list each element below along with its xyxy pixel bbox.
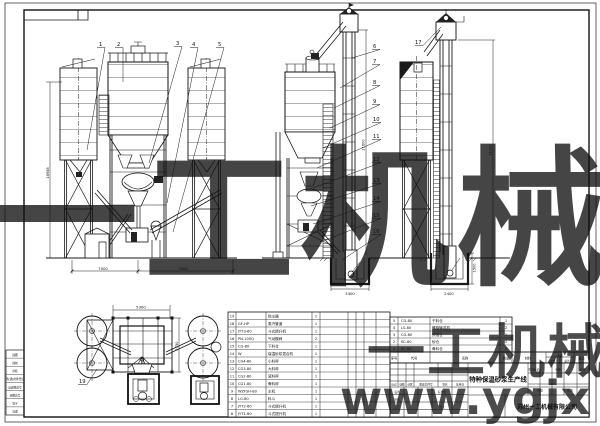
bom-cell-code: CG2-80	[238, 375, 252, 379]
bom-cell-code: LG-80	[238, 397, 249, 401]
bom-cell-no: 18	[230, 322, 235, 326]
callout-3: 3	[176, 41, 179, 47]
bom-cell-code: JYT3-60	[237, 330, 252, 334]
callout-6: 6	[373, 44, 376, 50]
bom-cell-name: 主机	[268, 389, 276, 394]
watermark-url: www.ygjx	[340, 371, 590, 425]
bom-cell-no: 11	[230, 375, 235, 379]
margin-block-label: 签字	[12, 402, 18, 406]
bom-cell-name: 大料秤	[268, 366, 279, 371]
callout-17: 17	[415, 40, 422, 46]
bom-cell-code: JYT1-60	[237, 412, 252, 416]
bom-cell-name: 液料秤	[268, 374, 279, 379]
bom-cell-qty: 1	[315, 330, 317, 334]
bom-cell-qty: 1	[315, 390, 317, 394]
bom-cell-no: 14	[230, 352, 235, 356]
margin-block-label: 日期	[12, 410, 18, 414]
callout-10: 10	[373, 117, 380, 123]
bom-cell-qty: 1	[315, 315, 317, 319]
bom-cell-code: PN-100Q	[238, 337, 254, 341]
bom-cell-code: JYT2-60	[237, 405, 252, 409]
bom-cell-code: CG1-80	[238, 382, 252, 386]
callout-2: 2	[117, 42, 120, 48]
bom-cell-name: 蒸汽管道	[268, 321, 283, 326]
margin-block-label: 审核	[12, 369, 18, 373]
bom-cell-no: 13	[230, 360, 235, 364]
bom-cell-name: 小料秤	[268, 359, 279, 364]
bom-cell-code: CG3-80	[238, 367, 252, 371]
bom-cell-qty: 1	[315, 412, 317, 416]
bom-cell-no: 12	[230, 367, 235, 371]
bom-cell-name: 气动蝶阀	[268, 336, 283, 341]
bom-cell-no: 10	[230, 382, 235, 386]
margin-block-label: 描校	[12, 361, 18, 365]
bom-cell-code: CG-80	[238, 345, 250, 349]
bom-cell-name: 斗式提升机	[268, 404, 286, 409]
callout-8: 8	[373, 80, 376, 86]
bom-cell-no: 17	[230, 330, 235, 334]
bom-cell-qty: 1	[315, 345, 317, 349]
callout-1: 1	[99, 42, 102, 48]
engineering-drawing-sheet: 描图描校审核借(通)用件登记旧底图总号底图总号签字日期	[0, 0, 600, 426]
bom-cell-no: 16	[230, 337, 235, 341]
margin-block-label: 旧底图总号	[8, 385, 22, 389]
bom-cell-code: GF-HP	[238, 322, 250, 326]
bom-cell-qty: 1	[315, 382, 317, 386]
bom-cell-name: 斗式提升机	[268, 329, 286, 334]
bom-cell-qty: 2	[315, 337, 317, 341]
bom-cell-name: 除尘器	[268, 314, 279, 319]
dim-plan-depth: 2750	[175, 341, 179, 351]
bom-cell-no: 7	[231, 405, 233, 409]
bom-cell-qty: 1	[315, 367, 317, 371]
bom-cell-qty: 1	[315, 397, 317, 401]
bom-cell-name: 下料仓	[268, 344, 279, 349]
bom-cell-name: 料斗	[268, 396, 276, 401]
watermark-center: 一工机械	[0, 134, 600, 308]
bom-cell-code: WZFSH-80	[238, 390, 258, 394]
bom-cell-qty: 1	[315, 322, 317, 326]
callout-5: 5	[218, 42, 221, 48]
margin-block-label: 描图	[12, 353, 18, 357]
callout-9: 9	[373, 99, 376, 105]
margin-block-label: 底图总号	[10, 393, 21, 397]
bom-cell-name: 斗式提升机	[268, 411, 286, 416]
bom-cell-qty: 1	[315, 375, 317, 379]
margin-block-label: 借(通)用件登记	[6, 377, 25, 381]
drawing-canvas: 描图描校审核借(通)用件登记旧底图总号底图总号签字日期	[0, 0, 600, 426]
callout-7: 7	[373, 59, 376, 65]
bom-cell-name: 保温砂浆混合机	[268, 351, 294, 356]
bom-cell-no: 15	[230, 345, 235, 349]
bom-cell-code: W	[238, 352, 242, 356]
bom-cell-qty: 1	[315, 360, 317, 364]
bom-cell-no: 19	[230, 315, 235, 319]
bom-cell-qty: 1	[315, 405, 317, 409]
bom-cell-code: CG4-80	[238, 360, 252, 364]
bom-cell-qty: 1	[315, 352, 317, 356]
bom-cell-name: 骨料秤	[268, 381, 279, 386]
callout-19: 19	[79, 379, 86, 385]
